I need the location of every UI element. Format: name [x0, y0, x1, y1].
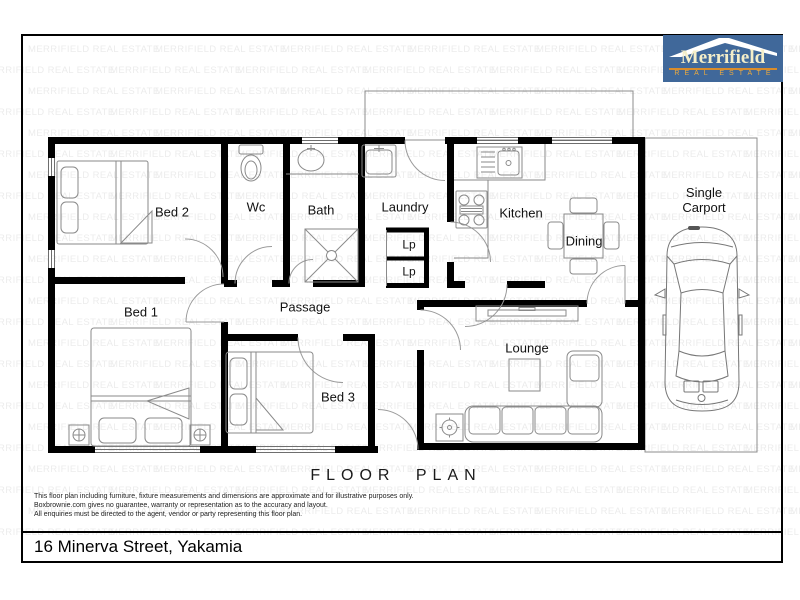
- floorplan-page: MERRIFIELD REAL ESTATEMERRIFIELD REAL ES…: [0, 0, 800, 600]
- room-label-passage: Passage: [280, 300, 331, 315]
- room-label-bed2: Bed 2: [155, 205, 189, 220]
- kitchen-fixtures: [454, 144, 545, 258]
- bed1-furniture: [69, 328, 210, 446]
- room-label-kitchen: Kitchen: [499, 206, 542, 221]
- windows: [49, 138, 613, 453]
- room-label-wc: Wc: [247, 200, 266, 215]
- room-label-lounge: Lounge: [505, 341, 548, 356]
- logo-name: Merrifield: [663, 48, 783, 68]
- logo-tagline: REAL ESTATE: [663, 70, 783, 77]
- room-label-bath: Bath: [308, 203, 335, 218]
- disclaimer-line-2: Boxbrownie.com gives no guarantee, warra…: [34, 501, 414, 510]
- address-divider-line: [21, 531, 783, 533]
- disclaimer-line-1: This floor plan including furniture, fix…: [34, 492, 414, 501]
- agency-logo: Merrifield REAL ESTATE: [663, 35, 783, 82]
- bed2-furniture: [57, 161, 152, 244]
- property-address: 16 Minerva Street, Yakamia: [34, 537, 242, 557]
- car-top-view: [655, 226, 749, 411]
- porch-outline: [365, 91, 633, 140]
- lounge-furniture: [436, 306, 602, 442]
- room-label-carport: Single Carport: [682, 185, 725, 215]
- room-label-bed3: Bed 3: [321, 390, 355, 405]
- disclaimer-line-3: All enquiries must be directed to the ag…: [34, 510, 414, 519]
- bed3-furniture: [226, 352, 313, 433]
- room-label-dining: Dining: [566, 234, 603, 249]
- room-label-laundry: Laundry: [382, 200, 429, 215]
- toilet-icon: [239, 145, 263, 181]
- laundry-sink-icon: [362, 145, 396, 177]
- room-label-lp1: Lp: [402, 238, 415, 253]
- disclaimer: This floor plan including furniture, fix…: [34, 492, 414, 519]
- room-label-lp2: Lp: [402, 265, 415, 280]
- plan-title: FLOOR PLAN: [310, 467, 481, 485]
- room-label-bed1: Bed 1: [124, 305, 158, 320]
